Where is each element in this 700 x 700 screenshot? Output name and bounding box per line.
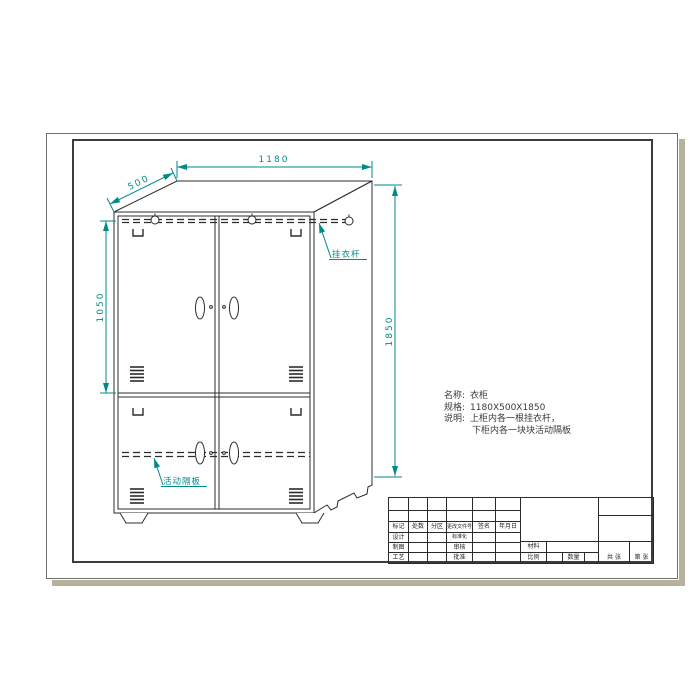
note-desc-value1: 上柜内各一根挂衣杆， (470, 414, 560, 424)
title-block-change-doc: 更改文件号 (447, 522, 473, 533)
title-block-draft: 制图 (389, 543, 409, 553)
note-spec-value: 1180X500X1850 (470, 403, 545, 413)
title-block-cell (496, 498, 521, 511)
title-block-cell (428, 543, 447, 553)
title-block-cell (389, 498, 409, 511)
keyhole-dot-icon (223, 452, 226, 455)
note-desc-line1: 说明:上柜内各一根挂衣杆， (444, 414, 571, 426)
keyhole-dot-icon (210, 306, 213, 309)
keyhole-dot-icon (210, 452, 213, 455)
title-block-process: 工艺 (389, 553, 409, 564)
note-desc-line2: 下柜内各一块块活动隔板 (444, 426, 571, 438)
title-block-cell (473, 533, 496, 543)
title-block-cell (447, 511, 473, 522)
title-block-date: 年月日 (496, 522, 521, 533)
note-desc-label: 说明: (444, 414, 465, 424)
title-block-cell (496, 511, 521, 522)
title-block-sheets-total: 共 张 (599, 542, 630, 564)
door-handle-icon (196, 442, 205, 464)
dim-label-upper-height: 1050 (96, 292, 106, 323)
dim-label-width: 1180 (259, 155, 290, 165)
title-block-cell (447, 498, 473, 511)
title-block-cell (428, 498, 447, 511)
title-block-cell (585, 553, 599, 564)
title-block-cell (428, 553, 447, 564)
title-block-material: 材料 (521, 542, 547, 553)
cabinet-foot-left (120, 513, 148, 523)
cabinet-side-face (314, 181, 372, 513)
movable-shelf-label: 活动隔板 (163, 476, 201, 487)
note-name-value: 衣柜 (470, 391, 488, 401)
title-block-cell (547, 542, 599, 553)
title-block-cell (496, 553, 521, 564)
drawing-notes: 名称:衣柜 规格:1180X500X1850 说明:上柜内各一根挂衣杆， 下柜内… (444, 391, 571, 437)
title-block-cell (547, 553, 563, 564)
title-block-cell (389, 511, 409, 522)
dim-label-height: 1850 (385, 316, 395, 347)
title-block-name-area (521, 498, 599, 542)
title-block-cell (409, 498, 428, 511)
note-name-line: 名称:衣柜 (444, 391, 571, 403)
wardrobe-technical-drawing: 1180 500 1050 1850 挂衣杆 活动隔板 (0, 0, 700, 700)
title-block-standardization: 标准化 (447, 533, 473, 543)
title-block-approve: 批准 (447, 553, 473, 564)
door-handle-icon (230, 297, 239, 319)
note-name-label: 名称: (444, 391, 465, 401)
title-block-review: 审核 (447, 543, 473, 553)
title-block-design: 设计 (389, 533, 409, 543)
cabinet-front-frame-inner (118, 216, 310, 509)
note-spec-label: 规格: (444, 403, 465, 413)
door-handle-icon (196, 297, 205, 319)
title-block-zone: 分区 (428, 522, 447, 533)
title-block-signature: 签名 (473, 522, 496, 533)
door-handle-icon (230, 442, 239, 464)
title-block-sheet-no: 第 张 (630, 542, 654, 564)
keyhole-dot-icon (223, 306, 226, 309)
note-spec-line: 规格:1180X500X1850 (444, 403, 571, 415)
title-block-cell (473, 543, 496, 553)
title-block-cell (409, 511, 428, 522)
title-block-cell (409, 543, 428, 553)
title-block-mark: 标记 (389, 522, 409, 533)
title-block-scale: 比例 (521, 553, 547, 564)
title-block-cell (409, 553, 428, 564)
cabinet-foot-right (296, 513, 324, 523)
title-block-quantity: 数量 (563, 553, 585, 564)
title-block-cell (496, 533, 521, 543)
hanging-rod-label: 挂衣杆 (332, 249, 361, 260)
title-block-cell (473, 511, 496, 522)
title-block-cell (428, 533, 447, 543)
title-block-cell (409, 533, 428, 543)
title-block: 标记 处数 分区 更改文件号 签名 年月日 设计 标准化 制图 审核 工艺 批准… (388, 497, 654, 564)
title-block-cell (599, 516, 654, 542)
title-block-cell (428, 511, 447, 522)
title-block-count: 处数 (409, 522, 428, 533)
note-desc-value2: 下柜内各一块块活动隔板 (472, 426, 571, 436)
title-block-cell (599, 498, 654, 516)
title-block-cell (473, 498, 496, 511)
title-block-cell (496, 543, 521, 553)
title-block-cell (473, 553, 496, 564)
